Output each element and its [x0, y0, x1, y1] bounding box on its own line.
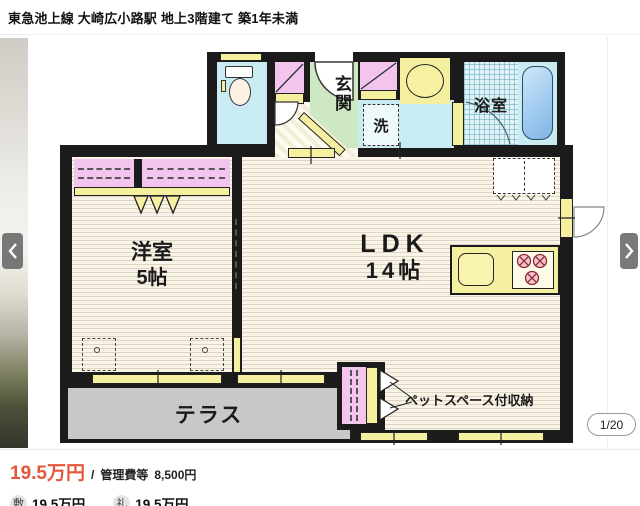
pet-storage-label: ペットスペース付収納	[405, 390, 575, 409]
kitchen-upper-cabinet	[493, 158, 555, 194]
hall-closet-left	[275, 62, 304, 93]
management-fee-label: 管理費等	[100, 466, 148, 483]
slide-divider	[607, 36, 608, 450]
toilet-bowl	[229, 78, 251, 106]
hall-closet-left-shelf	[275, 93, 304, 104]
laundry-label: 洗	[373, 115, 388, 136]
closet-divider-wall	[134, 159, 142, 187]
photo-counter: 1/20	[587, 413, 636, 436]
toilet-control-panel	[221, 80, 226, 92]
gas-stove	[512, 251, 554, 289]
pet-storage-closet	[342, 367, 366, 424]
window-ldk-right	[560, 198, 573, 238]
deposit-badge: 敷	[10, 495, 27, 506]
terrace-floor: テラス	[68, 388, 350, 439]
entrance-door-opening	[315, 52, 353, 62]
bathtub	[522, 66, 553, 140]
chevron-left-icon	[7, 242, 19, 260]
window-ldk-bottom-left	[360, 432, 428, 441]
exterior-door-arc	[574, 207, 604, 237]
fee-separator: /	[91, 468, 94, 482]
listing-page: 東急池上線 大崎広小路駅 地上3階建て 築1年未満	[0, 0, 640, 506]
ldk-label: LDK 14帖	[310, 230, 480, 284]
key-money-badge: 礼	[113, 495, 130, 506]
western-closet-left	[74, 159, 134, 187]
pet-storage-door	[366, 367, 378, 424]
bathroom-label: 浴室	[474, 92, 508, 116]
listing-header: 東急池上線 大崎広小路駅 地上3階建て 築1年未満	[0, 0, 640, 35]
window-western-room	[92, 374, 222, 384]
terrace-label: テラス	[175, 399, 244, 429]
management-fee-value: 8,500円	[154, 466, 196, 483]
washing-machine-space: 洗	[363, 104, 399, 146]
western-closet-right	[142, 159, 230, 187]
partition-dashed-track	[235, 219, 237, 289]
next-photo-button[interactable]	[620, 233, 638, 269]
photo-carousel: 洗 浴室	[0, 36, 640, 450]
window-top	[220, 53, 262, 61]
partition-wall-lower	[232, 289, 242, 337]
hall-closet-right	[360, 62, 397, 90]
window-ldk-left	[237, 374, 325, 384]
closet-rail	[74, 187, 230, 196]
page-title: 東急池上線 大崎広小路駅 地上3階建て 築1年未満	[8, 8, 298, 27]
toilet-tank	[225, 66, 253, 78]
floor-plan-image[interactable]: 洗 浴室	[60, 52, 605, 449]
hall-closet-right-shelf	[360, 90, 397, 100]
bathroom-floor: 浴室	[464, 62, 518, 145]
window-ldk-bottom-right	[458, 432, 544, 441]
floor-mark-right	[190, 338, 224, 371]
partition-wall-upper	[232, 157, 242, 219]
deposit-row: 敷 19.5万円 礼 19.5万円	[10, 493, 630, 506]
bathroom-door	[452, 102, 464, 146]
deposit-value: 19.5万円	[32, 493, 85, 506]
rent-amount: 19.5万円	[10, 458, 85, 485]
rent-row: 19.5万円 / 管理費等 8,500円	[10, 458, 630, 485]
price-section: 19.5万円 / 管理費等 8,500円 敷 19.5万円 礼 19.5万円	[0, 451, 640, 506]
entrance-label: 玄関	[328, 64, 354, 124]
previous-photo-button[interactable]	[2, 233, 23, 269]
photo-counter-text: 1/20	[600, 418, 623, 432]
ldk-entry-sliding-door	[288, 148, 335, 158]
chevron-right-icon	[623, 242, 635, 260]
western-room-label: 洋室 5帖	[72, 240, 232, 291]
wash-basin-bowl	[406, 64, 444, 98]
key-money-value: 19.5万円	[135, 493, 188, 506]
floor-mark-left	[82, 338, 116, 371]
